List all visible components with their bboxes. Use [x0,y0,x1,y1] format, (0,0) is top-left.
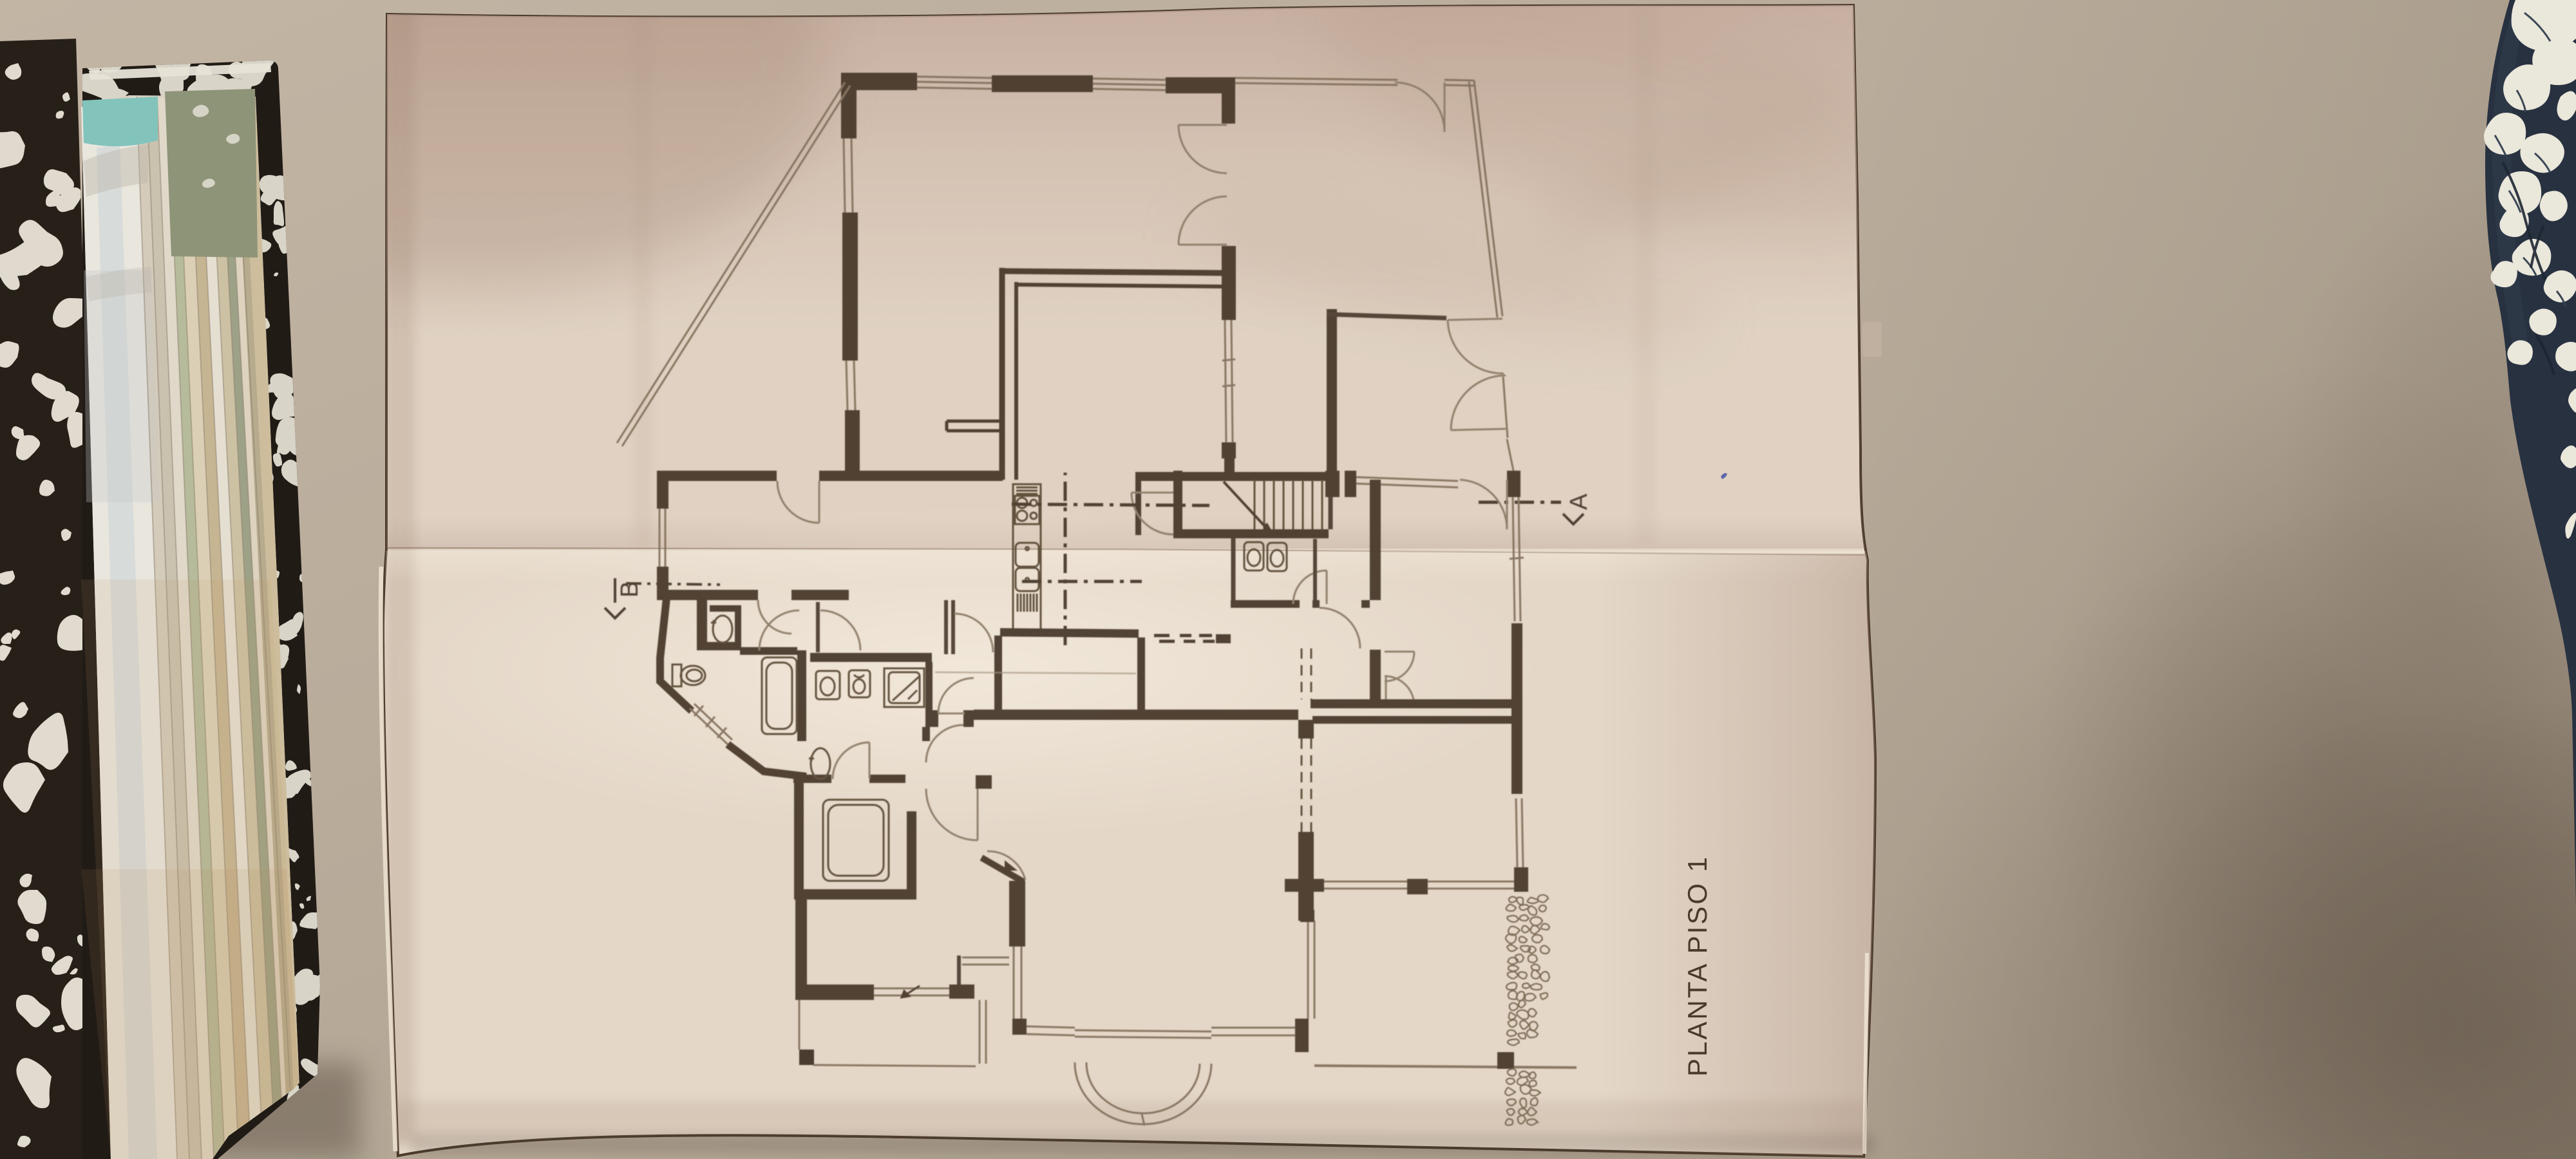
svg-text:A: A [1566,493,1593,510]
svg-text:PLANTA PISO 1: PLANTA PISO 1 [1682,855,1712,1077]
svg-text:B: B [616,581,643,598]
